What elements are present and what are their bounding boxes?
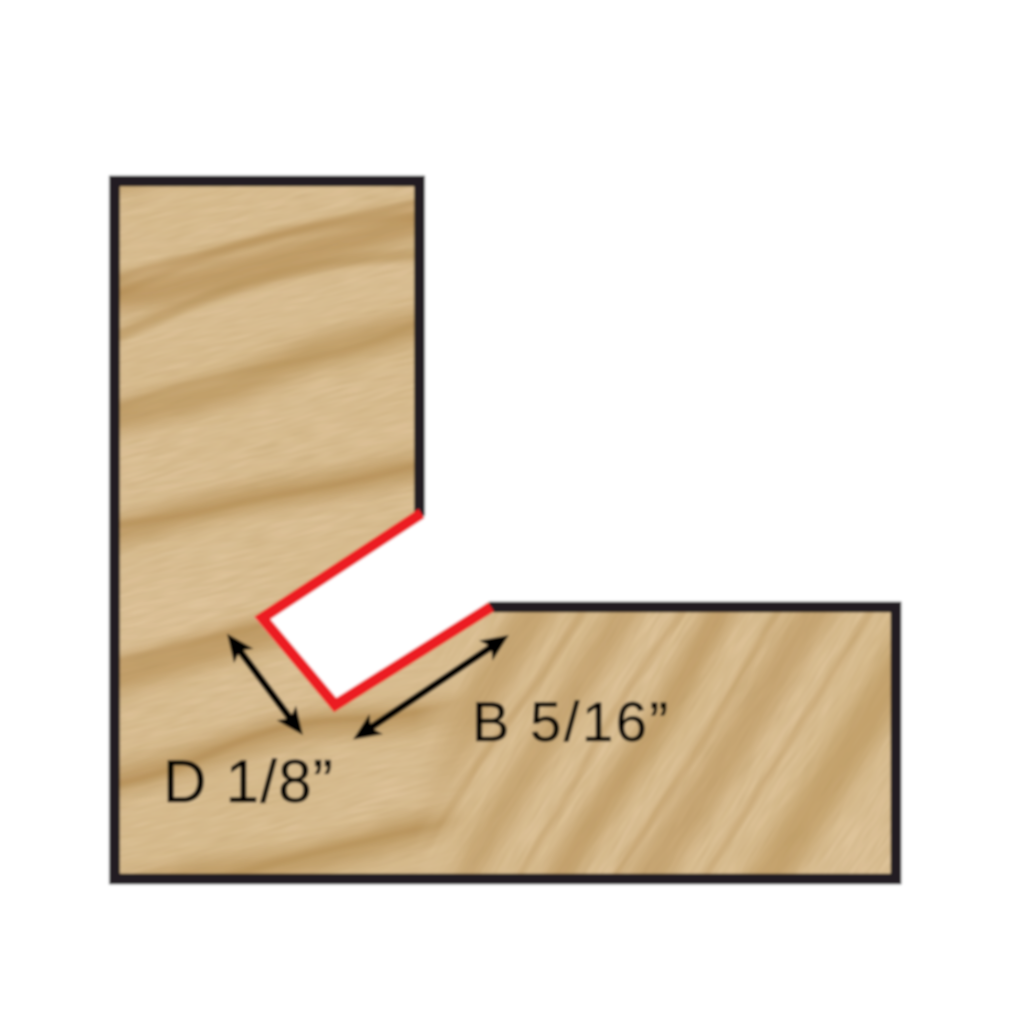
svg-text:D 1/8”: D 1/8” (163, 748, 334, 815)
svg-text:B 5/16”: B 5/16” (472, 690, 671, 753)
